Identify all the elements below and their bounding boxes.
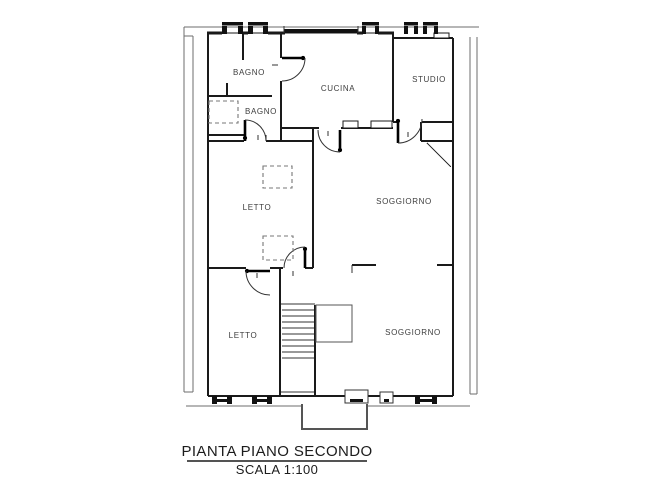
window-icon <box>345 390 368 403</box>
door-letto-mid <box>284 247 307 276</box>
plan-scale: SCALA 1:100 <box>236 462 318 477</box>
top-windows <box>222 22 438 34</box>
stair-landing <box>316 305 352 342</box>
room-label-bagno-mid: BAGNO <box>245 107 277 116</box>
door-cucina <box>318 130 342 152</box>
floorplan-page: BAGNO BAGNO CUCINA STUDIO LETTO SOGGIORN… <box>0 0 648 492</box>
door-bagno-top <box>272 56 305 81</box>
door-bagno-mid <box>243 120 266 141</box>
title-block: PIANTA PIANO SECONDO SCALA 1:100 <box>181 443 372 477</box>
entrance-steps <box>302 404 367 429</box>
room-label-letto-mid: LETTO <box>243 203 272 212</box>
door-letto-bottom <box>245 269 270 295</box>
window-icon <box>423 22 438 34</box>
door-studio <box>396 119 422 143</box>
chamfer-corner <box>427 143 451 167</box>
window-icon <box>252 396 272 404</box>
room-label-bagno-top: BAGNO <box>233 68 265 77</box>
room-label-soggiorno-bottom: SOGGIORNO <box>385 328 441 337</box>
room-label-soggiorno-mid: SOGGIORNO <box>376 197 432 206</box>
fixture-box-bagno <box>209 101 238 123</box>
room-labels: BAGNO BAGNO CUCINA STUDIO LETTO SOGGIORN… <box>229 68 446 340</box>
window-icon <box>212 396 232 404</box>
window-icon <box>404 22 418 34</box>
fixture-box-letto-1 <box>263 166 292 188</box>
room-label-studio: STUDIO <box>412 75 446 84</box>
fixture-box-letto-2 <box>263 236 293 260</box>
window-icon <box>380 392 393 403</box>
plan-title: PIANTA PIANO SECONDO <box>181 443 372 460</box>
staircase <box>280 268 352 395</box>
wall-pilaster <box>371 121 392 128</box>
floorplan-drawing: BAGNO BAGNO CUCINA STUDIO LETTO SOGGIORN… <box>0 0 648 492</box>
window-icon <box>248 22 268 34</box>
room-label-cucina: CUCINA <box>321 84 355 93</box>
stair-steps <box>282 310 314 358</box>
wall-pilaster <box>343 121 358 128</box>
room-label-letto-bottom: LETTO <box>229 331 258 340</box>
window-icon <box>415 396 437 404</box>
window-icon <box>362 22 379 34</box>
window-icon <box>222 22 243 34</box>
